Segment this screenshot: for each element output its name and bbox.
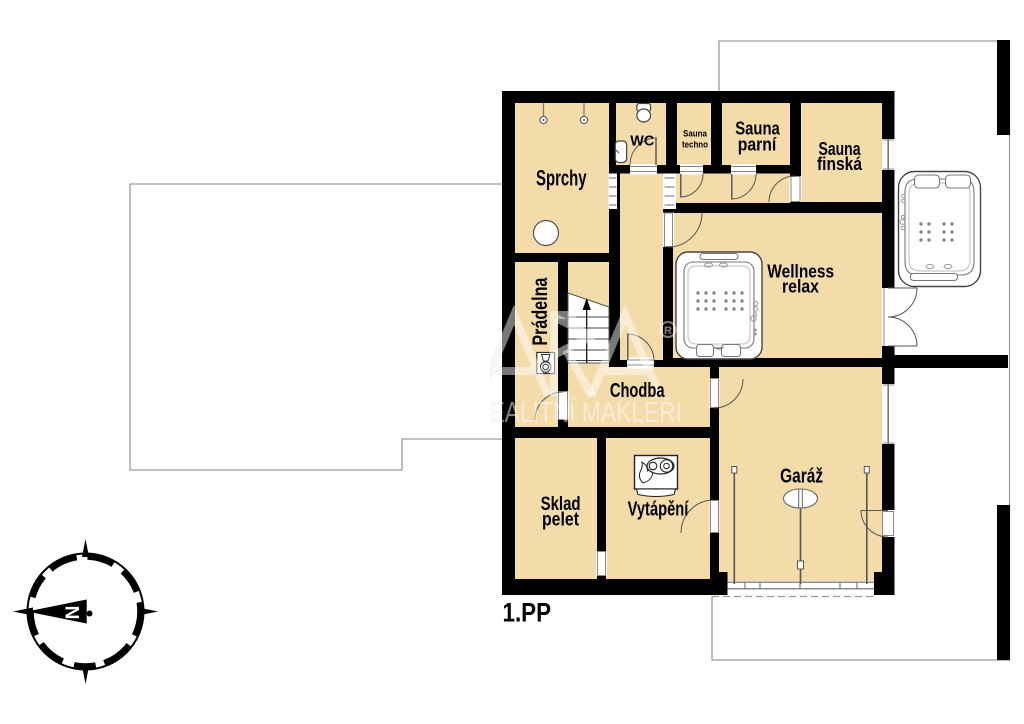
svg-text:Sauna: Sauna [683, 129, 708, 139]
svg-text:N: N [61, 606, 82, 620]
svg-text:Chodba: Chodba [610, 380, 665, 402]
svg-text:relax: relax [782, 276, 820, 297]
svg-text:Sprchy: Sprchy [536, 166, 587, 191]
svg-text:finská: finská [817, 153, 863, 174]
svg-text:WC: WC [630, 134, 655, 150]
svg-text:Garáž: Garáž [780, 465, 823, 487]
svg-text:parní: parní [738, 133, 777, 154]
svg-text:1.PP: 1.PP [503, 598, 552, 628]
svg-text:Prádelna: Prádelna [529, 277, 552, 345]
svg-text:R: R [664, 325, 672, 337]
svg-text:Vytápění: Vytápění [628, 498, 690, 520]
svg-text:techno: techno [682, 139, 708, 149]
svg-text:pelet: pelet [542, 509, 580, 530]
